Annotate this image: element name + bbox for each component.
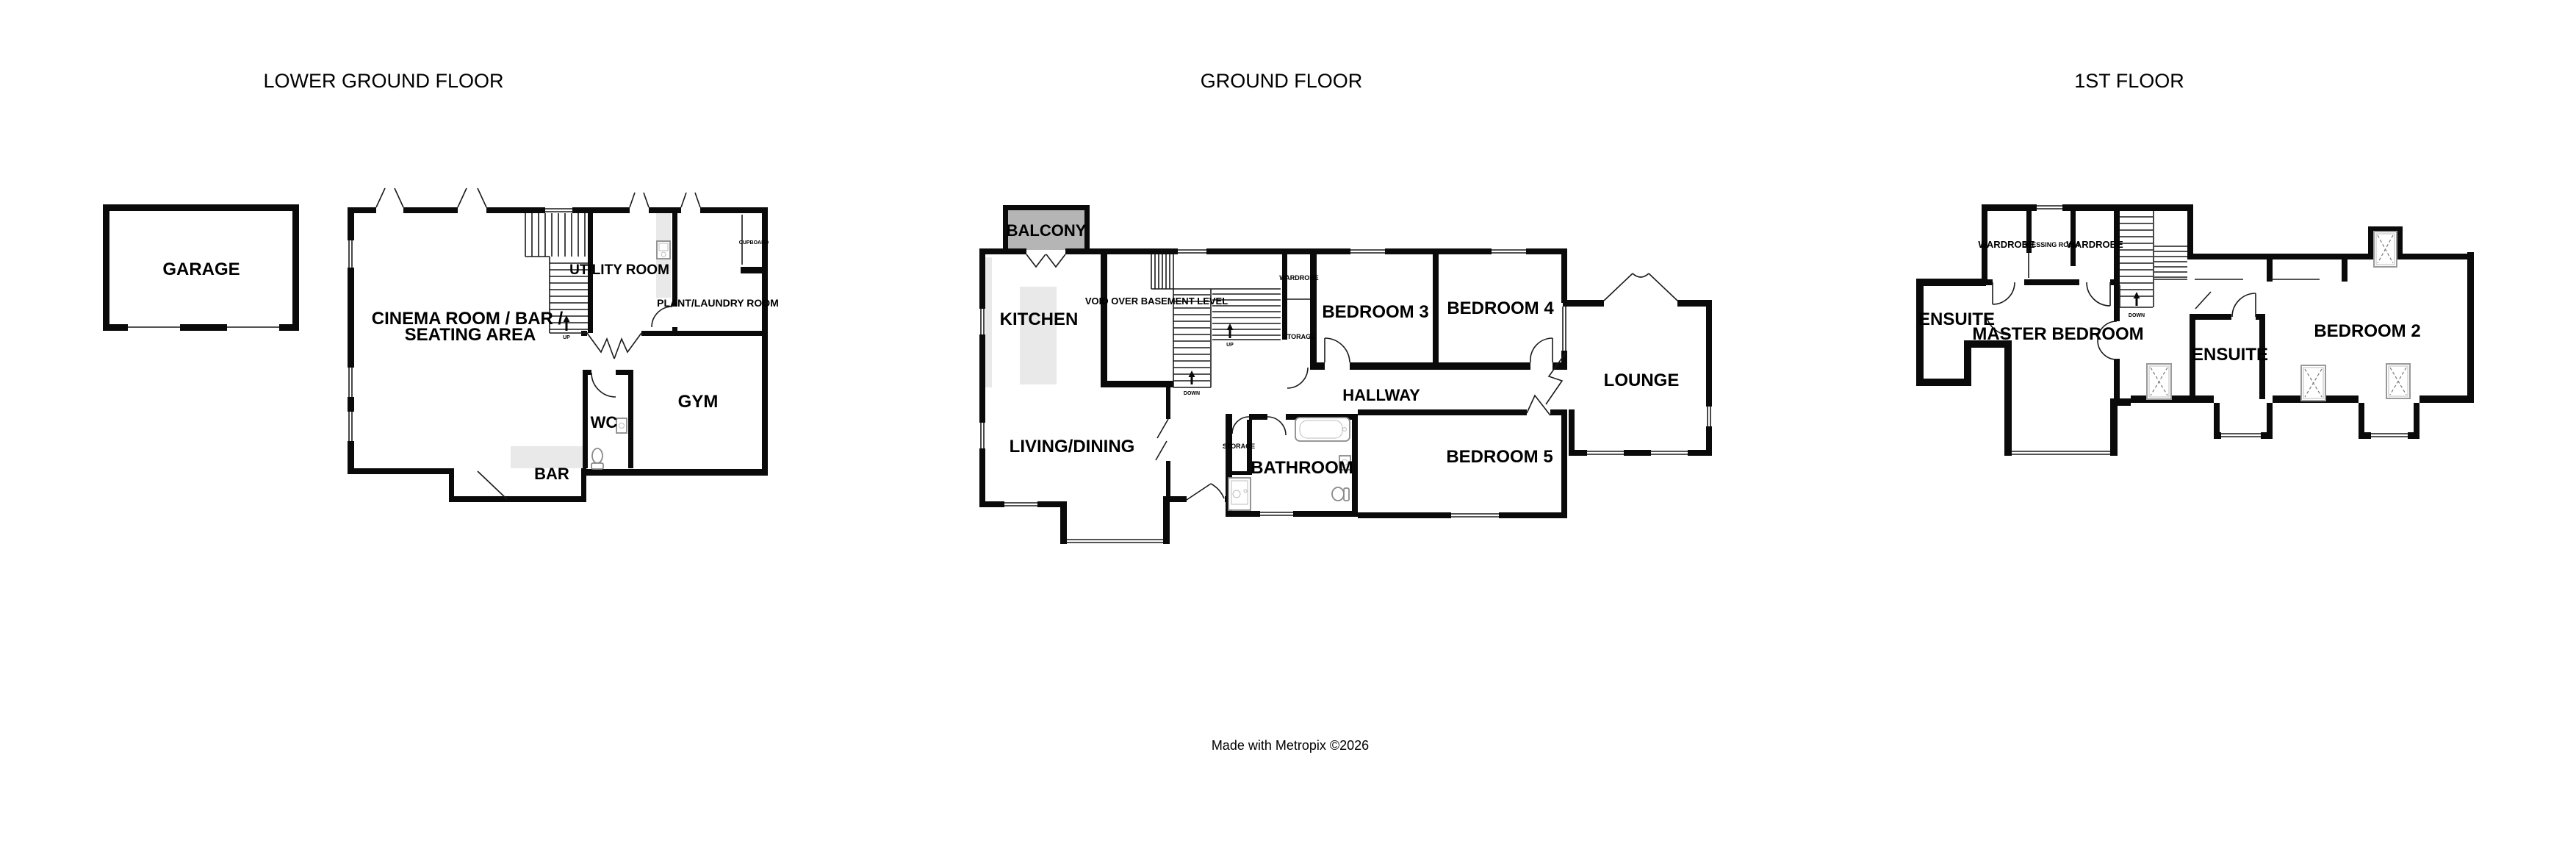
wall-segment: [348, 441, 354, 468]
wall-segment: [672, 327, 677, 335]
stair-arrow-head: [1227, 323, 1234, 330]
door-arc: [458, 188, 467, 207]
wall-segment: [2359, 432, 2371, 439]
wall-segment: [486, 207, 545, 213]
floor-plan-canvas: LOWER GROUND FLOOR GROUND FLOOR 1ST FLOO…: [0, 0, 2576, 852]
wall-segment: [649, 207, 681, 213]
bedroom5-label: BEDROOM 5: [1446, 447, 1553, 467]
wall-segment: [348, 468, 454, 474]
wall-segment: [1358, 409, 1527, 415]
bedroom3-label: BEDROOM 3: [1322, 302, 1428, 322]
wall-segment: [103, 204, 109, 331]
gf-up-label: UP: [1226, 343, 1234, 348]
wall-segment: [741, 267, 768, 273]
wall-segment: [1916, 279, 1924, 386]
gym-label: GYM: [678, 392, 719, 412]
wall-segment: [2062, 204, 2193, 211]
toilet-icon: [1332, 487, 1349, 501]
wc-label: WC: [591, 413, 618, 432]
ff-down-label: DOWN: [2129, 313, 2145, 318]
door-arc: [1157, 419, 1168, 438]
floorplan-page: { "colors": { "wall": "#0a0a0a", "balcon…: [0, 0, 2576, 852]
door-arc: [2087, 282, 2110, 306]
wall-segment: [2118, 398, 2131, 406]
bedroom4-label: BEDROOM 4: [1447, 298, 1554, 318]
door-arc: [1187, 484, 1211, 500]
wall-segment: [1310, 254, 1317, 370]
door-arc: [644, 193, 649, 207]
wall-segment: [583, 370, 588, 468]
ensuite-mid-label: ENSUITE: [2192, 345, 2268, 365]
wall-segment: [1293, 511, 1358, 517]
wall-segment: [979, 248, 1026, 254]
stair-arrow-head: [2134, 292, 2140, 298]
wall-segment: [449, 496, 586, 502]
wall-segment: [979, 501, 1004, 507]
bar-label: BAR: [534, 465, 569, 483]
ff-wardrobe-right-label: WARDROBE: [2066, 239, 2123, 250]
wall-segment: [1206, 248, 1350, 254]
wall-segment: [1226, 511, 1260, 517]
wall-segment: [1916, 279, 1986, 286]
gf-storage-top-label: STORAGE: [1283, 333, 1315, 340]
gf-down-label: DOWN: [1184, 391, 1200, 396]
door-arc: [1325, 338, 1350, 362]
wall-segment: [628, 370, 633, 468]
wall-segment: [2267, 259, 2273, 282]
bathroom-label: BATHROOM: [1251, 458, 1353, 478]
door-arc: [1993, 282, 2015, 304]
wall-segment: [1170, 496, 1187, 502]
wall-segment: [1249, 414, 1267, 420]
wall-segment: [1561, 351, 1567, 362]
door-arc: [1267, 417, 1286, 435]
wall-segment: [1166, 461, 1170, 498]
wall-segment: [2024, 279, 2079, 285]
wall-segment: [1385, 248, 1492, 254]
wall-segment: [2193, 254, 2368, 259]
wall-segment: [2261, 432, 2273, 439]
wall-segment: [2420, 395, 2474, 403]
door-arc: [681, 193, 686, 207]
wall-segment: [2190, 314, 2231, 320]
wall-segment: [1561, 409, 1567, 518]
wall-segment: [762, 207, 768, 476]
door-arc: [1530, 338, 1553, 362]
wc-toilet-icon: [591, 448, 603, 469]
wall-segment: [979, 248, 985, 309]
door-arc: [1211, 484, 1224, 498]
wall-segment: [572, 207, 630, 213]
door-arc: [1287, 368, 1308, 388]
wall-segment: [1439, 362, 1530, 370]
door-arc: [395, 188, 403, 207]
wall-segment: [180, 324, 227, 331]
wall-segment: [2004, 450, 2012, 456]
kitchen-label: KITCHEN: [1000, 309, 1079, 329]
wall-segment: [403, 207, 458, 213]
wall-segment: [2114, 359, 2120, 398]
wall-segment: [1317, 362, 1325, 370]
garage-label: GARAGE: [162, 259, 240, 279]
door-arc: [478, 471, 507, 499]
first-floor-title: 1ST FLOOR: [2074, 70, 2184, 92]
door-arc: [2232, 293, 2256, 317]
wall-segment: [1624, 450, 1651, 456]
wall-segment: [2004, 340, 2012, 456]
wall-segment: [2342, 259, 2347, 282]
utility-room-label: UTILITY ROOM: [569, 262, 669, 278]
cupboard-label: CUPBOARD: [739, 240, 769, 246]
wall-segment: [583, 370, 591, 375]
wall-segment: [581, 469, 768, 476]
bathroom-sink-icon: [1228, 478, 1251, 510]
wall-segment: [2187, 211, 2193, 259]
wall-segment: [1101, 254, 1107, 387]
wall-segment: [1982, 204, 2037, 211]
wall-segment: [1561, 254, 1567, 303]
wc-basin-icon: [616, 418, 627, 433]
wall-segment: [103, 324, 128, 331]
wall-segment: [1226, 471, 1252, 475]
door-arc: [1649, 273, 1677, 301]
balcony-label: BALCONY: [1007, 221, 1087, 240]
door-arc: [630, 193, 635, 207]
wall-segment: [2467, 252, 2474, 403]
wall-segment: [1592, 300, 1604, 307]
wall-segment: [348, 397, 354, 412]
wall-segment: [279, 324, 299, 331]
wall-segment: [2110, 398, 2118, 456]
wall-segment: [979, 334, 985, 423]
door-arc: [1026, 254, 1046, 267]
door-arc: [1633, 273, 1649, 277]
wall-segment: [1563, 300, 1592, 307]
wall-segment: [700, 207, 768, 213]
wall-segment: [348, 268, 354, 368]
master-bedroom-label: MASTER BEDROOM: [1972, 324, 2143, 344]
door-arc: [591, 373, 616, 397]
door-arc: [2195, 292, 2211, 309]
wall-segment: [1986, 279, 1993, 285]
wall-segment: [1916, 379, 1971, 386]
door-arc: [587, 333, 614, 359]
wall-segment: [1350, 362, 1439, 370]
wall-segment: [1065, 248, 1178, 254]
lower-up-label: UP: [563, 335, 570, 340]
kitchen-counter: [985, 257, 992, 387]
door-arc: [1232, 417, 1249, 434]
void-label: VOID OVER BASEMENT LEVEL: [1085, 296, 1228, 307]
wall-segment: [1166, 387, 1170, 419]
door-arc: [1604, 273, 1633, 301]
wall-segment: [2214, 432, 2221, 439]
metropix-credit: Made with Metropix ©2026: [1212, 738, 1369, 753]
plant-laundry-label: PLANT/LAUNDRY ROOM: [657, 297, 779, 309]
utility-sink-icon: [657, 241, 670, 259]
wall-segment: [292, 204, 299, 331]
bathtub-icon: [1295, 418, 1350, 441]
door-arc: [614, 333, 641, 359]
lounge-label: LOUNGE: [1604, 370, 1680, 390]
wall-segment: [1060, 501, 1067, 544]
door-arc: [1527, 395, 1550, 415]
living-dining-label: LIVING/DINING: [1010, 437, 1135, 457]
door-arc: [1046, 254, 1065, 267]
wall-segment: [348, 207, 354, 240]
gf-wardrobe-label: WARDROBE: [1279, 274, 1319, 282]
door-arc: [695, 193, 700, 207]
door-arc: [478, 188, 486, 207]
lower-ground-floor-title: LOWER GROUND FLOOR: [263, 70, 503, 92]
cinema-room-label-line2: SEATING AREA: [405, 325, 536, 345]
wall-segment: [2408, 432, 2420, 439]
wall-segment: [1499, 512, 1567, 518]
kitchen-island: [1020, 287, 1057, 384]
wall-segment: [1282, 254, 1287, 340]
plan-labels: LOWER GROUND FLOOR GROUND FLOOR 1ST FLOO…: [162, 70, 2420, 753]
wall-segment: [1688, 450, 1712, 456]
wall-segment: [2397, 226, 2403, 259]
door-arc: [1156, 441, 1167, 460]
wall-segment: [2114, 285, 2120, 321]
wall-segment: [1163, 496, 1170, 544]
hallway-label: HALLWAY: [1342, 386, 1420, 404]
wall-segment: [1358, 512, 1451, 518]
wall-segment: [2131, 395, 2214, 403]
door-arc: [652, 307, 672, 327]
wall-segment: [2401, 254, 2467, 259]
bedroom2-label: BEDROOM 2: [2314, 321, 2420, 341]
wall-segment: [1060, 538, 1067, 544]
wall-segment: [103, 204, 299, 211]
wall-segment: [1101, 381, 1173, 387]
gf-storage-mid-label: STORAGE: [1223, 443, 1255, 450]
ground-floor-title: GROUND FLOOR: [1201, 70, 1363, 92]
wall-segment: [979, 448, 985, 507]
wall-segment: [1003, 205, 1090, 210]
wall-segment: [1526, 248, 1567, 254]
wall-segment: [1433, 254, 1439, 370]
wall-segment: [641, 331, 768, 336]
wall-segment: [1569, 409, 1575, 456]
door-arc: [376, 188, 385, 207]
wall-segment: [672, 213, 677, 307]
wall-segment: [1706, 301, 1712, 407]
